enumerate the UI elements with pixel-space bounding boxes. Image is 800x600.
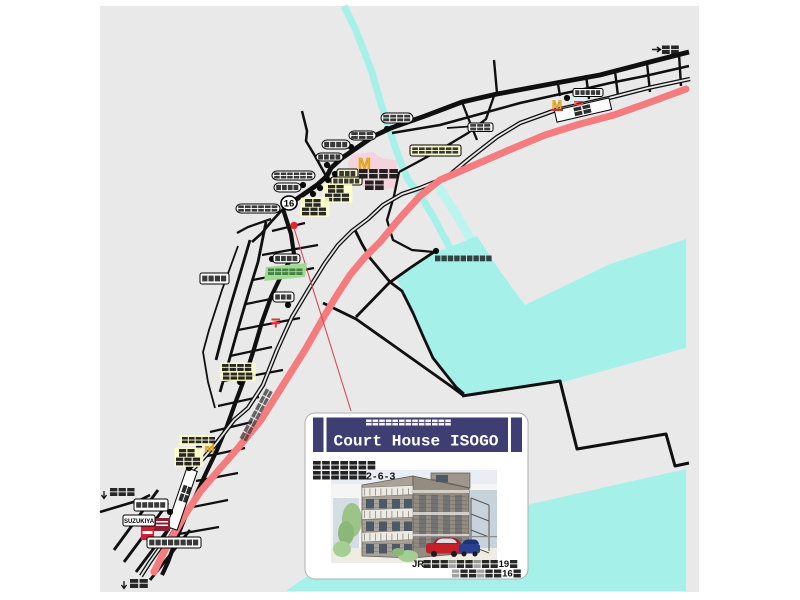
svg-text:Court House ISOGO: Court House ISOGO [334,433,499,451]
svg-text:JR: JR [412,559,424,570]
svg-text:SUZUKIYA: SUZUKIYA [124,519,155,525]
svg-text:16: 16 [284,199,295,210]
svg-text:16: 16 [502,569,513,580]
svg-text:2-6-3: 2-6-3 [366,471,397,483]
